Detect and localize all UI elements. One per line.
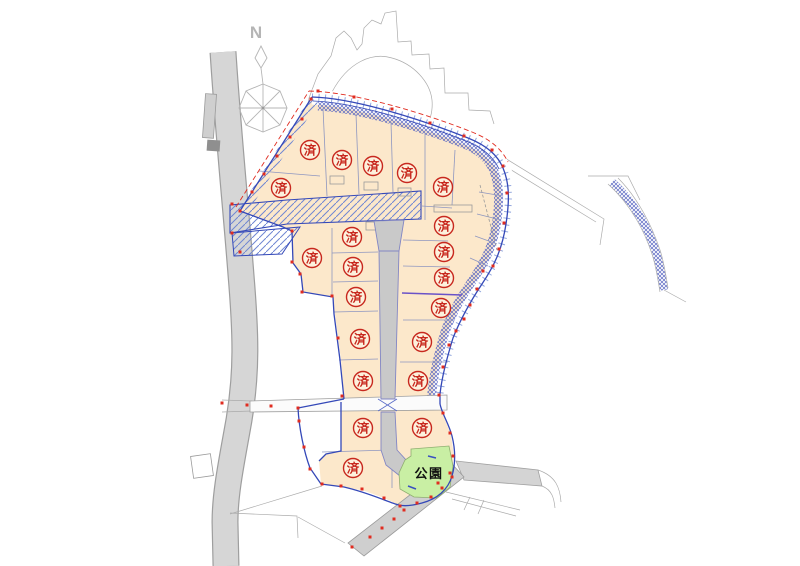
southeast-road-curve (542, 486, 555, 508)
main-road-funnel (374, 220, 404, 251)
survey-point (270, 405, 273, 408)
survey-point (503, 222, 506, 225)
sold-mark: 済 (344, 459, 363, 478)
sold-mark: 済 (364, 157, 383, 176)
survey-point (221, 402, 224, 405)
sold-mark: 済 (272, 179, 291, 198)
sold-mark-label: 済 (304, 142, 317, 157)
southwest-lines (230, 486, 345, 543)
survey-point (301, 291, 304, 294)
survey-point (291, 230, 294, 233)
sold-mark-label: 済 (357, 420, 370, 435)
sold-mark: 済 (413, 333, 432, 352)
survey-point (429, 122, 432, 125)
site-plan-map: N (0, 0, 800, 566)
survey-point (289, 136, 292, 139)
survey-point (246, 404, 249, 407)
survey-point (498, 248, 501, 251)
sold-mark: 済 (347, 288, 366, 307)
survey-point (231, 203, 234, 206)
sold-mark-label: 済 (437, 179, 450, 194)
survey-point (276, 155, 279, 158)
survey-point (391, 108, 394, 111)
sold-mark-label: 済 (275, 180, 288, 195)
sold-mark: 済 (354, 419, 373, 438)
survey-point (381, 527, 384, 530)
survey-point (340, 485, 343, 488)
sold-mark: 済 (435, 217, 454, 236)
sold-mark: 済 (432, 299, 451, 318)
sold-mark-label: 済 (401, 165, 414, 180)
sold-mark: 済 (413, 419, 432, 438)
building-outline (202, 94, 216, 139)
sold-mark: 済 (333, 151, 352, 170)
compass-needle (255, 46, 267, 68)
survey-point (442, 366, 445, 369)
sold-mark-label: 済 (412, 373, 425, 388)
building-outline (191, 454, 214, 479)
survey-point (451, 476, 454, 479)
sold-mark: 済 (435, 243, 454, 262)
sold-mark-label: 済 (347, 259, 360, 274)
sold-mark: 済 (435, 269, 454, 288)
survey-point (438, 394, 441, 397)
survey-point (310, 98, 313, 101)
main-road (379, 251, 399, 399)
survey-point (353, 96, 356, 99)
survey-point (442, 412, 445, 415)
building-outline (207, 140, 221, 152)
sold-mark-label: 済 (438, 244, 451, 259)
southeast-road (456, 461, 542, 486)
survey-point (297, 407, 300, 410)
survey-point (441, 487, 444, 490)
sold-mark-label: 済 (367, 158, 380, 173)
survey-point (416, 502, 419, 505)
survey-point (430, 496, 433, 499)
survey-point (317, 90, 320, 93)
sold-mark: 済 (354, 372, 373, 391)
site-plan-svg: N (0, 0, 800, 566)
survey-point (482, 270, 485, 273)
sold-mark-label: 済 (350, 289, 363, 304)
survey-point (298, 420, 301, 423)
survey-point (239, 210, 242, 213)
sold-mark-label: 済 (347, 460, 360, 475)
sold-mark: 済 (434, 178, 453, 197)
survey-point (361, 488, 364, 491)
survey-point (303, 446, 306, 449)
survey-point (369, 536, 372, 539)
east-slope-band (612, 182, 664, 290)
sold-mark-label: 済 (416, 420, 429, 435)
sold-mark: 済 (303, 249, 322, 268)
sold-mark: 済 (409, 372, 428, 391)
sold-mark: 済 (301, 141, 320, 160)
east-road-tail (664, 290, 686, 302)
sold-mark-label: 済 (435, 300, 448, 315)
survey-point (301, 118, 304, 121)
survey-point (476, 288, 479, 291)
survey-point (448, 344, 451, 347)
compass-axis (261, 68, 263, 84)
survey-point (321, 483, 324, 486)
survey-point (449, 432, 452, 435)
survey-point (341, 395, 344, 398)
survey-point (506, 192, 509, 195)
sold-mark: 済 (398, 164, 417, 183)
survey-point (452, 455, 455, 458)
survey-point (251, 191, 254, 194)
survey-point (403, 509, 406, 512)
survey-point (309, 468, 312, 471)
north-label: N (250, 23, 262, 42)
survey-point (263, 173, 266, 176)
sold-mark: 済 (343, 228, 362, 247)
compass-rose: N (239, 23, 287, 132)
sold-mark-label: 済 (354, 331, 367, 346)
sold-mark-label: 済 (438, 270, 451, 285)
sold-mark-label: 済 (346, 229, 359, 244)
survey-point (469, 304, 472, 307)
survey-point (239, 251, 242, 254)
south-lines (446, 492, 520, 516)
survey-point (393, 518, 396, 521)
park-label: 公園 (414, 466, 443, 481)
survey-point (463, 318, 466, 321)
survey-point (231, 232, 234, 235)
sold-mark: 済 (351, 330, 370, 349)
survey-point (491, 149, 494, 152)
survey-point (291, 261, 294, 264)
survey-point (337, 337, 340, 340)
survey-point (492, 265, 495, 268)
sold-mark-label: 済 (306, 250, 319, 265)
survey-point (463, 135, 466, 138)
survey-point (351, 546, 354, 549)
sold-mark: 済 (344, 258, 363, 277)
survey-point (455, 330, 458, 333)
survey-point (331, 295, 334, 298)
survey-point (299, 273, 302, 276)
survey-point (399, 505, 402, 508)
sold-mark-label: 済 (357, 373, 370, 388)
survey-point (383, 497, 386, 500)
survey-point (502, 165, 505, 168)
sold-mark-label: 済 (336, 152, 349, 167)
sold-mark-label: 済 (438, 218, 451, 233)
sold-mark-label: 済 (416, 334, 429, 349)
survey-point (437, 482, 440, 485)
survey-point (449, 472, 452, 475)
